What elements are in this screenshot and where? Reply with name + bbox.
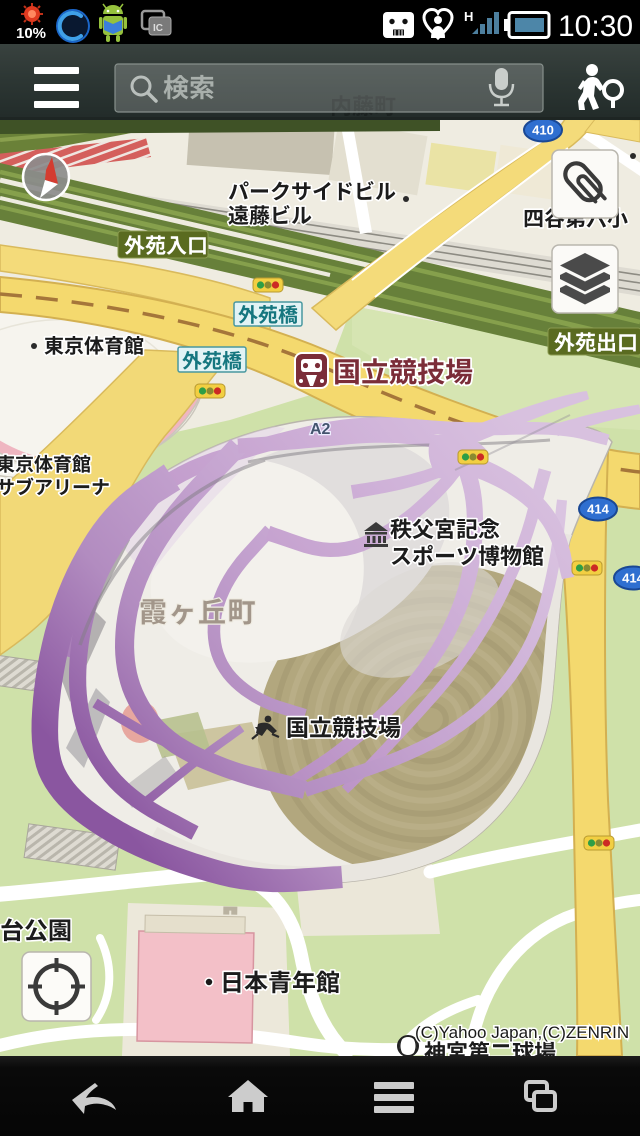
svg-text:IC: IC [153,23,163,34]
svg-text:10:30: 10:30 [558,10,633,43]
svg-text:10%: 10% [16,25,46,42]
svg-text:H: H [464,9,473,24]
svg-text:410: 410 [532,123,554,138]
svg-text:414: 414 [587,502,609,517]
svg-text:414: 414 [622,571,640,586]
svg-text:(C)Yahoo Japan,(C)ZENRIN: (C)Yahoo Japan,(C)ZENRIN [415,1023,629,1042]
svg-text:A2: A2 [310,421,331,438]
